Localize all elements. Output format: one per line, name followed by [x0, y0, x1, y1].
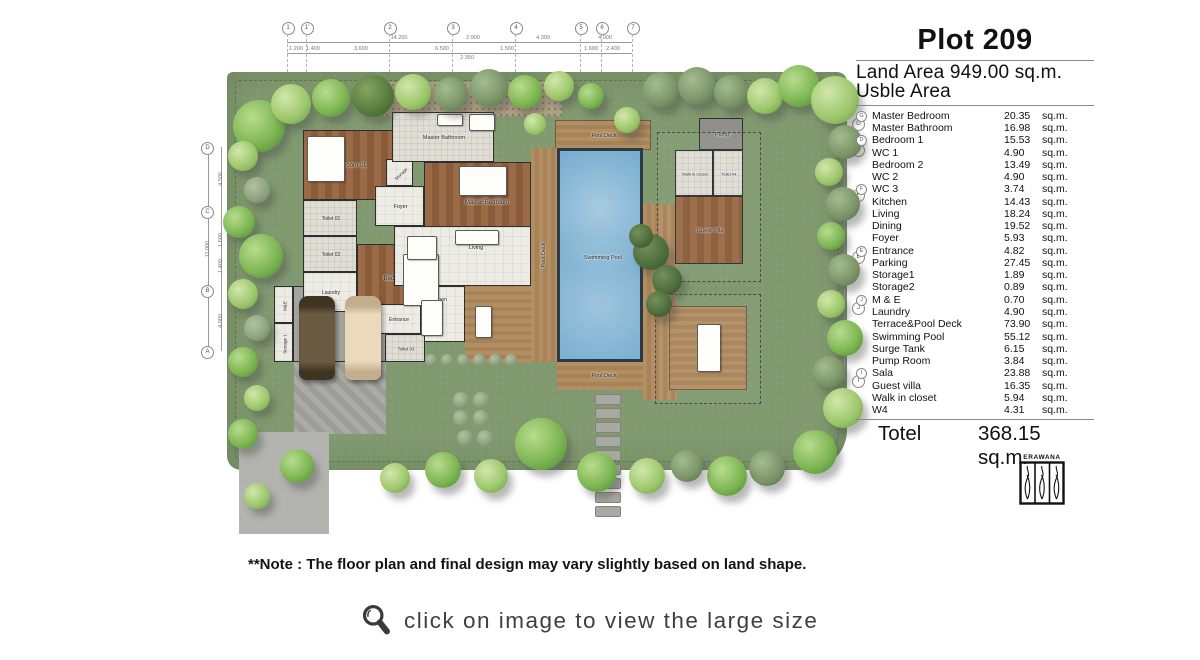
- tree: [813, 356, 845, 388]
- area-unit: sq.m.: [1042, 392, 1068, 404]
- room-name: M & E: [872, 294, 901, 306]
- table-row: EEntrance4.82sq.m.: [856, 245, 1094, 257]
- table-row: Guest villa16.35sq.m.: [856, 380, 1094, 392]
- tree: [228, 141, 258, 171]
- plot-title: Plot 209: [856, 24, 1094, 57]
- grid-marker-badge: G: [856, 111, 867, 122]
- room-label: Swimming Pool: [584, 255, 622, 261]
- furniture: [437, 114, 463, 126]
- dimension-value: 1.600: [218, 233, 224, 247]
- table-row: WC 24.90sq.m.: [856, 171, 1094, 183]
- room-area-value: 4.90: [1004, 171, 1024, 183]
- dimension-value: 14.200: [391, 35, 408, 41]
- table-row: Dining19.52sq.m.: [856, 220, 1094, 232]
- room-name: Laundry: [872, 306, 910, 318]
- room-area-value: 0.89: [1004, 281, 1024, 293]
- dimension-value: 1.600: [584, 46, 598, 52]
- table-row: Pump Room3.84sq.m.: [856, 355, 1094, 367]
- room-area-value: 16.35: [1004, 380, 1030, 392]
- room-area-value: 1.89: [1004, 269, 1024, 281]
- furniture: [475, 306, 492, 338]
- room-name: Sala: [872, 367, 893, 379]
- parked-car: [299, 296, 335, 380]
- dimension-value: 2.350: [460, 55, 474, 61]
- tree: [515, 418, 567, 470]
- grid-marker-badge: I: [856, 368, 867, 379]
- room-name: WC 1: [872, 147, 898, 159]
- grid-marker-badge: J: [856, 295, 867, 306]
- room-area-value: 16.98: [1004, 122, 1030, 134]
- room-area-value: 6.15: [1004, 343, 1024, 355]
- room-label: Foyer: [393, 204, 407, 210]
- area-unit: sq.m.: [1042, 281, 1068, 293]
- room-name: Living: [872, 208, 899, 220]
- furniture: [421, 300, 443, 336]
- furniture: [455, 230, 499, 245]
- tree: [671, 450, 703, 482]
- area-unit: sq.m.: [1042, 220, 1068, 232]
- room-area-value: 4.90: [1004, 147, 1024, 159]
- dimension-value: 4.000: [218, 314, 224, 328]
- area-unit: sq.m.: [1042, 196, 1068, 208]
- grid-marker-3: 3: [447, 22, 460, 35]
- stepping-stone: [595, 422, 621, 433]
- grid-marker-A: A: [201, 346, 214, 359]
- table-row: Bedroom 213.49sq.m.: [856, 159, 1094, 171]
- room-area-value: 15.53: [1004, 134, 1030, 146]
- tree: [352, 75, 394, 117]
- shrub: [489, 354, 501, 366]
- table-row: Kitchen14.43sq.m.: [856, 196, 1094, 208]
- grid-marker-C: C: [201, 206, 214, 219]
- dimension-value: 2.900: [466, 35, 480, 41]
- grid-projection-line: [306, 34, 307, 72]
- tree: [817, 222, 845, 250]
- room-area-value: 0.70: [1004, 294, 1024, 306]
- room-area-value: 55.12: [1004, 331, 1030, 343]
- floor-plan-image[interactable]: 11'23456714.2002.9004.3004.0001.2001.400…: [199, 8, 867, 543]
- room-area-value: 19.52: [1004, 220, 1030, 232]
- area-table-panel: Plot 209 Land Area 949.00 sq.m. Usble Ar…: [856, 24, 1094, 448]
- area-unit: sq.m.: [1042, 171, 1068, 183]
- room-label: Storage 1: [282, 334, 287, 354]
- tree: [244, 483, 270, 509]
- tree: [228, 347, 258, 377]
- area-unit: sq.m.: [1042, 306, 1068, 318]
- room-area-value: 3.84: [1004, 355, 1024, 367]
- table-row: Master Bathroom16.98sq.m.: [856, 122, 1094, 134]
- room-mne: M&E: [274, 286, 293, 323]
- shrub: [477, 430, 493, 446]
- room-entrance: Entrance: [375, 304, 421, 334]
- grid-marker-1: 1: [282, 22, 295, 35]
- room-name: Foyer: [872, 232, 899, 244]
- dimension-value: 1.200: [289, 46, 303, 52]
- tree: [678, 67, 716, 105]
- room-area-value: 13.49: [1004, 159, 1030, 171]
- stepping-stone: [595, 492, 621, 503]
- room-area-value: 4.82: [1004, 245, 1024, 257]
- room-swimming-pool: Swimming Pool: [557, 148, 643, 362]
- room-area-value: 4.90: [1004, 306, 1024, 318]
- parked-car: [345, 296, 381, 380]
- room-storage-sm: Storage: [386, 159, 413, 186]
- tree: [793, 430, 837, 474]
- tree: [470, 69, 508, 107]
- tree: [380, 463, 410, 493]
- dimension-value: 1.500: [500, 46, 514, 52]
- room-label: Toilet 02: [322, 252, 341, 258]
- shrub: [425, 354, 437, 366]
- tree: [578, 83, 604, 109]
- table-row: Parking27.45sq.m.: [856, 257, 1094, 269]
- tree: [749, 450, 785, 486]
- tree: [714, 75, 748, 109]
- room-toilet-02: Toilet 02: [303, 236, 357, 272]
- shrub: [457, 430, 473, 446]
- room-name: Walk in closet: [872, 392, 936, 404]
- room-area-value: 27.45: [1004, 257, 1030, 269]
- room-area-value: 14.43: [1004, 196, 1030, 208]
- area-unit: sq.m.: [1042, 232, 1068, 244]
- dimension-value: 3.600: [354, 46, 368, 52]
- view-large-link[interactable]: click on image to view the large size: [360, 603, 818, 639]
- dimension-value: 4.300: [536, 35, 550, 41]
- grid-marker-D: D: [201, 142, 214, 155]
- shrub: [453, 410, 469, 426]
- pavilion-roof-outline: [657, 132, 761, 282]
- grid-projection-line: [515, 34, 516, 72]
- land-area-label: Land Area 949.00 sq.m.: [856, 63, 1094, 82]
- room-label: Pool Deck: [591, 373, 616, 379]
- caption-text: click on image to view the large size: [404, 608, 818, 634]
- erawana-logo: ERAWANA: [1016, 454, 1068, 510]
- table-row: GMaster Bedroom20.35sq.m.: [856, 110, 1094, 122]
- shrub: [473, 410, 489, 426]
- room-name: W4: [872, 404, 888, 416]
- area-unit: sq.m.: [1042, 318, 1068, 330]
- room-name: Bedroom 2: [872, 159, 923, 171]
- area-unit: sq.m.: [1042, 159, 1068, 171]
- stepping-stone: [595, 506, 621, 517]
- tree: [707, 456, 747, 496]
- room-label: Entrance: [389, 317, 409, 323]
- room-label: Toilet 01: [322, 216, 341, 222]
- tree: [629, 458, 665, 494]
- shrub: [473, 392, 489, 408]
- room-area-value: 5.94: [1004, 392, 1024, 404]
- shrub: [244, 315, 270, 341]
- room-label: Toilet 03: [398, 347, 415, 352]
- table-row: JM & E0.70sq.m.: [856, 294, 1094, 306]
- tree: [228, 419, 258, 449]
- dimension-value: 4.000: [598, 35, 612, 41]
- area-unit: sq.m.: [1042, 183, 1068, 195]
- room-name: Master Bedroom: [872, 110, 950, 122]
- disclaimer-note: **Note : The floor plan and final design…: [248, 556, 806, 573]
- room-name: WC 2: [872, 171, 898, 183]
- room-name: Kitchen: [872, 196, 907, 208]
- tree: [524, 113, 546, 135]
- stepping-stone: [595, 394, 621, 405]
- room-label: M&E: [282, 301, 287, 311]
- stepping-stone: [595, 436, 621, 447]
- shrub: [457, 354, 469, 366]
- grid-marker-4: 4: [510, 22, 523, 35]
- tree: [817, 290, 845, 318]
- room-area-value: 5.93: [1004, 232, 1024, 244]
- area-unit: sq.m.: [1042, 245, 1068, 257]
- room-area-value: 23.88: [1004, 367, 1030, 379]
- grid-marker-5: 5: [575, 22, 588, 35]
- grid-marker-2: 2: [384, 22, 397, 35]
- room-area-value: 4.31: [1004, 404, 1024, 416]
- room-label: Pool Deck: [541, 242, 547, 267]
- table-row: DBedroom 115.53sq.m.: [856, 134, 1094, 146]
- dimension-value: 1.400: [306, 46, 320, 52]
- room-toilet-01: Toilet 01: [303, 200, 357, 236]
- table-row: Terrace&Pool Deck73.90sq.m.: [856, 318, 1094, 330]
- grid-projection-line: [452, 34, 453, 72]
- total-divider: [856, 419, 1094, 420]
- room-name: Entrance: [872, 245, 914, 257]
- table-row: FWC 33.74sq.m.: [856, 183, 1094, 195]
- dimension-value: 1.400: [218, 259, 224, 273]
- room-area-value: 18.24: [1004, 208, 1030, 220]
- tree: [312, 79, 350, 117]
- area-table: GMaster Bedroom20.35sq.m.Master Bathroom…: [856, 110, 1094, 417]
- furniture: [307, 136, 345, 182]
- table-row: WC 14.90sq.m.: [856, 147, 1094, 159]
- divider: [856, 105, 1094, 106]
- tree: [577, 452, 617, 492]
- grid-marker-6: 6: [596, 22, 609, 35]
- tree: [811, 76, 859, 124]
- area-unit: sq.m.: [1042, 134, 1068, 146]
- area-unit: sq.m.: [1042, 257, 1068, 269]
- area-unit: sq.m.: [1042, 147, 1068, 159]
- room-name: Bedroom 1: [872, 134, 923, 146]
- table-row: Storage20.89sq.m.: [856, 281, 1094, 293]
- grid-marker-B: B: [201, 285, 214, 298]
- table-row: Foyer5.93sq.m.: [856, 232, 1094, 244]
- brand-name: ERAWANA: [1016, 454, 1068, 461]
- table-row: Surge Tank6.15sq.m.: [856, 343, 1094, 355]
- area-unit: sq.m.: [1042, 355, 1068, 367]
- tree: [271, 84, 311, 124]
- room-area-value: 3.74: [1004, 183, 1024, 195]
- shrub: [505, 354, 517, 366]
- table-row: Laundry4.90sq.m.: [856, 306, 1094, 318]
- tree: [815, 158, 843, 186]
- grid-marker-7: 7: [627, 22, 640, 35]
- tree: [228, 279, 258, 309]
- tree: [508, 75, 542, 109]
- room-name: Master Bathroom: [872, 122, 953, 134]
- shrub: [244, 177, 270, 203]
- grid-marker-badge: F: [856, 184, 867, 195]
- room-pool-deck-bottom: Pool Deck: [557, 362, 651, 390]
- room-label: Living: [469, 245, 483, 251]
- elephant-emblem-icon: [1019, 461, 1065, 505]
- shrub: [473, 354, 485, 366]
- grid-projection-line: [632, 34, 633, 72]
- stepping-stone: [595, 408, 621, 419]
- room-toilet-03: Toilet 03: [385, 334, 425, 362]
- grid-marker-1': 1': [301, 22, 314, 35]
- room-pool-deck-left: Pool Deck: [531, 148, 557, 362]
- dimension-value: 4.500: [218, 172, 224, 186]
- room-name: Storage1: [872, 269, 915, 281]
- furniture: [407, 236, 437, 260]
- area-unit: sq.m.: [1042, 343, 1068, 355]
- room-name: Swimming Pool: [872, 331, 944, 343]
- tree: [239, 234, 283, 278]
- furniture: [459, 166, 507, 196]
- room-name: WC 3: [872, 183, 898, 195]
- room-area-value: 20.35: [1004, 110, 1030, 122]
- room-name: Pump Room: [872, 355, 930, 367]
- table-row: Living18.24sq.m.: [856, 208, 1094, 220]
- tree: [643, 72, 679, 108]
- area-unit: sq.m.: [1042, 269, 1068, 281]
- tree: [434, 77, 468, 111]
- table-row: W44.31sq.m.: [856, 404, 1094, 416]
- shrub: [441, 354, 453, 366]
- tree: [646, 291, 672, 317]
- room-storage-1: Storage 1: [274, 323, 293, 362]
- area-unit: sq.m.: [1042, 404, 1068, 416]
- area-unit: sq.m.: [1042, 380, 1068, 392]
- area-unit: sq.m.: [1042, 367, 1068, 379]
- tree: [244, 385, 270, 411]
- tree: [280, 449, 314, 483]
- tree: [629, 224, 653, 248]
- room-name: Dining: [872, 220, 902, 232]
- total-row: Totel 368.15 sq.m.: [856, 422, 1094, 448]
- page: 11'23456714.2002.9004.3004.0001.2001.400…: [0, 0, 1200, 660]
- room-label: Master Bathroom: [423, 135, 465, 141]
- table-row: ISala23.88sq.m.: [856, 367, 1094, 379]
- dimension-value: 2.400: [606, 46, 620, 52]
- magnifier-icon: [360, 603, 394, 639]
- tree: [425, 452, 461, 488]
- area-unit: sq.m.: [1042, 122, 1068, 134]
- furniture: [403, 254, 439, 306]
- tree: [826, 187, 860, 221]
- room-label: Pool Deck: [591, 133, 616, 139]
- tree: [614, 107, 640, 133]
- table-row: Walk in closet5.94sq.m.: [856, 392, 1094, 404]
- divider: [856, 60, 1094, 61]
- area-unit: sq.m.: [1042, 331, 1068, 343]
- table-row: Storage11.89sq.m.: [856, 269, 1094, 281]
- grid-projection-line: [287, 34, 288, 72]
- furniture: [697, 324, 721, 372]
- area-unit: sq.m.: [1042, 294, 1068, 306]
- shrub: [453, 392, 469, 408]
- furniture: [469, 114, 495, 131]
- dimension-value: 6.500: [435, 46, 449, 52]
- area-unit: sq.m.: [1042, 110, 1068, 122]
- grid-marker-badge: D: [856, 135, 867, 146]
- area-unit: sq.m.: [1042, 208, 1068, 220]
- room-name: Storage2: [872, 281, 915, 293]
- room-name: Terrace&Pool Deck: [872, 318, 962, 330]
- tree: [474, 459, 508, 493]
- room-label: Master Bedroom: [465, 200, 509, 206]
- tree: [544, 71, 574, 101]
- tree: [395, 74, 431, 110]
- dimension-value: 11.000: [205, 241, 211, 257]
- room-name: Parking: [872, 257, 908, 269]
- room-label: Storage: [393, 166, 408, 181]
- tree: [223, 206, 255, 238]
- table-row: Swimming Pool55.12sq.m.: [856, 331, 1094, 343]
- usable-area-label: Usble Area: [856, 82, 1094, 101]
- room-area-value: 73.90: [1004, 318, 1030, 330]
- room-name: Surge Tank: [872, 343, 925, 355]
- total-label: Totel: [878, 422, 921, 446]
- room-foyer: Foyer: [375, 186, 424, 226]
- room-name: Guest villa: [872, 380, 921, 392]
- grid-projection-line: [580, 34, 581, 72]
- grid-marker-badge: E: [856, 246, 867, 257]
